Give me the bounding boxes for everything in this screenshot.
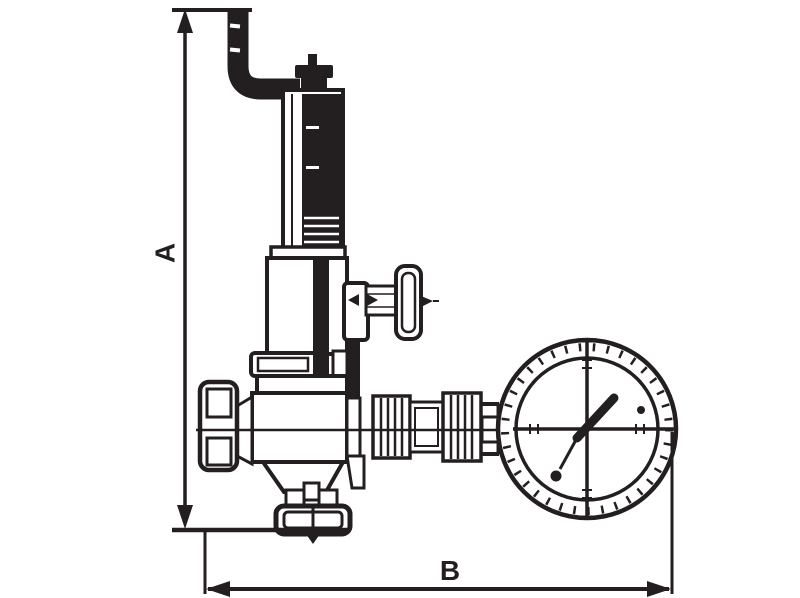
- bonnet-flange: [251, 353, 317, 376]
- gauge-screw-dot: [637, 406, 645, 414]
- diagram-canvas: A B: [0, 0, 800, 598]
- adjusting-cap: [295, 54, 333, 92]
- valve-body: [252, 376, 360, 462]
- dim-b-arrow-right: [647, 581, 671, 597]
- pressure-gauge: [498, 339, 676, 519]
- spring-housing: [271, 90, 345, 259]
- inlet-union: [200, 382, 252, 470]
- outlet-nipple: [373, 393, 481, 461]
- valve-technical-drawing: A B: [0, 0, 800, 598]
- bypass-tap: [344, 266, 439, 398]
- dim-a-label: A: [150, 243, 181, 263]
- tap-handle: [396, 266, 421, 339]
- dim-b-arrow-left: [206, 581, 230, 597]
- lower-body: [263, 456, 364, 510]
- dim-a-arrow-down: [177, 505, 193, 529]
- bottom-flange: [276, 506, 350, 544]
- dim-a-arrow-up: [177, 9, 193, 33]
- dim-b-label: B: [440, 555, 460, 586]
- bonnet: [267, 258, 347, 354]
- drain-tip: [306, 534, 320, 544]
- relief-pipe: [230, 11, 300, 89]
